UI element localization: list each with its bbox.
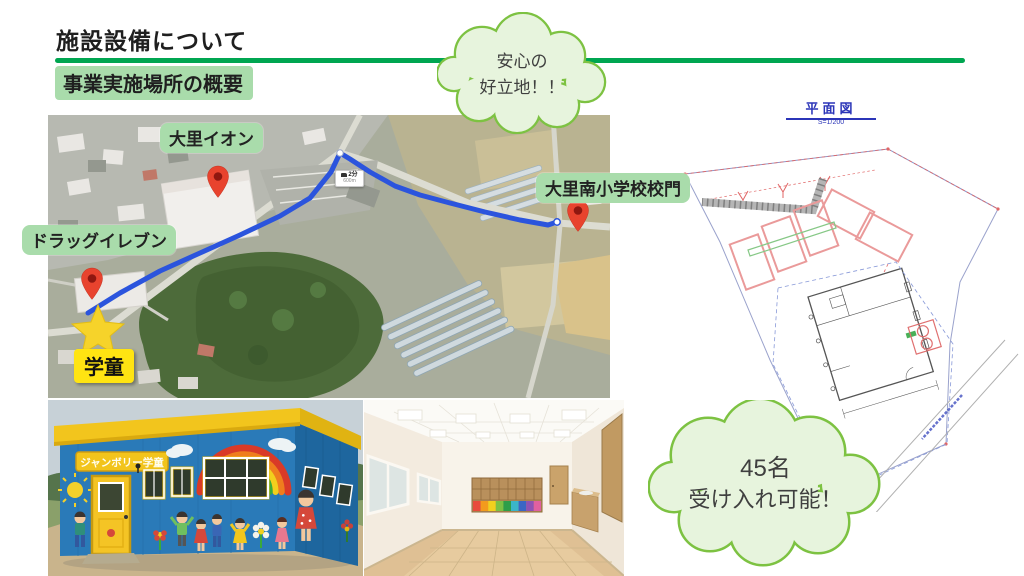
- route-waypoint-dot: [337, 150, 343, 156]
- route-map: 大里イオン ドラッグイレブン 大里南小学校校門 学童 2分 600m: [48, 115, 610, 398]
- callout-location: 安心の 好立地！！: [437, 12, 607, 134]
- callout-location-line1: 安心の: [497, 49, 548, 75]
- colorful-bins: [473, 501, 541, 511]
- car-icon: [341, 173, 347, 177]
- map-pin-school-icon: [566, 199, 590, 233]
- back-door: [550, 466, 568, 504]
- cubby-shelf: [472, 478, 542, 512]
- building-illustration: ジャンボリー学童: [48, 400, 363, 576]
- callout-capacity-line2: 受け入れ可能！: [688, 485, 842, 516]
- callout-location-text: 安心の 好立地！！: [437, 12, 607, 134]
- route-info-box: 2分 600m: [335, 170, 364, 187]
- interior-illustration: [364, 400, 624, 576]
- callout-capacity-text: 45名 受け入れ可能！: [648, 400, 883, 568]
- map-pin-aeon-icon: [206, 165, 230, 199]
- map-pin-drugstore-icon: [80, 267, 104, 301]
- route-distance: 600m: [336, 179, 363, 185]
- building-exterior-image: ジャンボリー学童: [48, 400, 363, 576]
- slide: 施設設備について 事業実施場所の概要 安心の 好立地！！: [0, 0, 1024, 576]
- route-end-dot: [554, 219, 560, 225]
- callout-capacity-line1: 45名: [740, 452, 791, 486]
- map-label-gakudo: 学童: [74, 349, 134, 383]
- section-subtitle: 事業実施場所の概要: [55, 66, 253, 100]
- interior-room-image: [364, 400, 624, 576]
- right-door: [602, 414, 622, 522]
- building-sign-text: ジャンボリー学童: [80, 456, 164, 469]
- callout-location-line2: 好立地！！: [480, 75, 565, 101]
- map-label-drugstore: ドラッグイレブン: [22, 225, 176, 255]
- callout-capacity: 45名 受け入れ可能！: [648, 400, 883, 568]
- map-label-school-gate: 大里南小学校校門: [536, 173, 690, 203]
- page-title: 施設設備について: [56, 22, 247, 56]
- map-label-aeon: 大里イオン: [160, 123, 263, 153]
- counter-cabinet: [572, 488, 600, 532]
